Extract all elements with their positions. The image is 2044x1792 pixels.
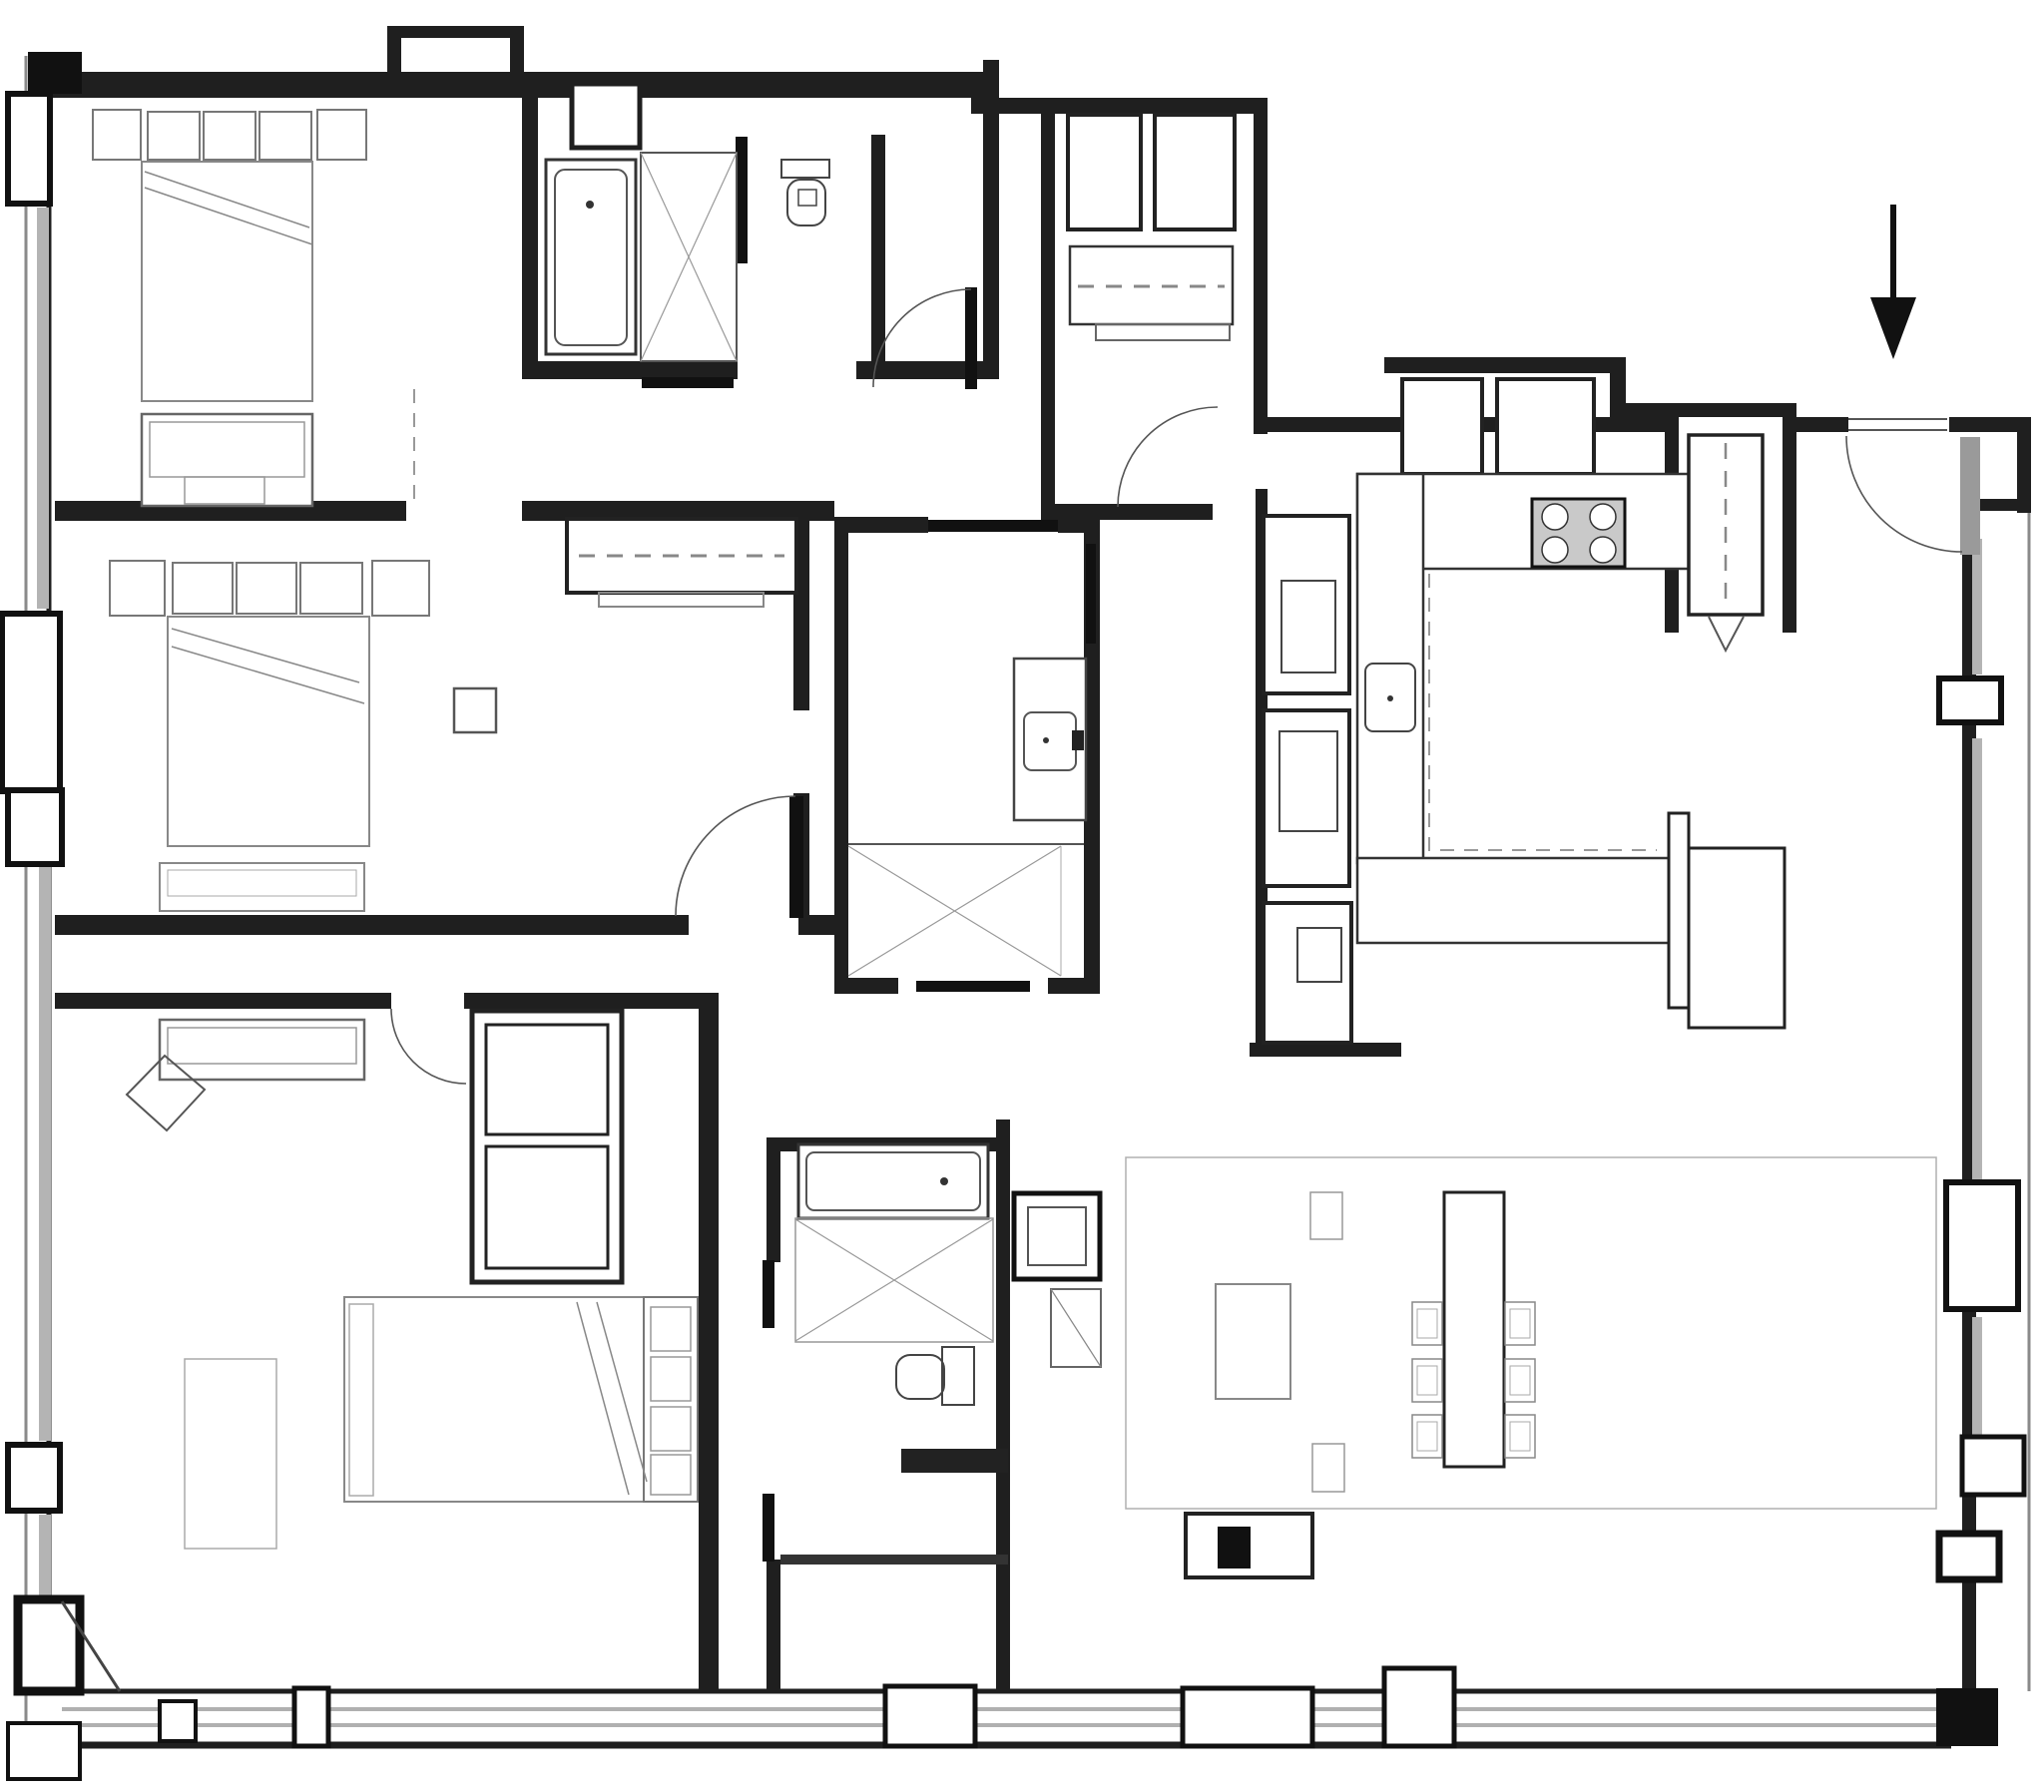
pillar-right-2: [1946, 1182, 2018, 1309]
left-window-glass-1: [37, 208, 49, 609]
dining-table: [1444, 1192, 1504, 1467]
bed1-body: [142, 162, 312, 401]
kitchen-counter-bottom: [1357, 858, 1669, 943]
right-window-glass-2: [1972, 738, 1982, 1179]
side-table-1: [1310, 1192, 1342, 1239]
bedroom2-bottom-wall-a: [55, 915, 689, 935]
master-bed-headboard: [644, 1297, 698, 1502]
bath2-tub-drain: [940, 1177, 948, 1185]
bath2-divider: [780, 1555, 1008, 1565]
bed2-body: [168, 617, 369, 846]
fridge-door-mark: [1709, 617, 1744, 651]
stove-burner-2: [1590, 504, 1616, 530]
master-bed-foot: [349, 1304, 373, 1496]
bed1-fold-2: [145, 188, 312, 244]
pillar-right-1: [1939, 678, 2001, 722]
hall-closet-box-2: [1155, 115, 1235, 229]
mullion-bottom-4: [1183, 1688, 1312, 1746]
pillar-below-corner: [8, 1723, 80, 1779]
bath1-tub-drain: [586, 201, 594, 209]
pillar-bottom-right-corner: [1936, 1688, 1998, 1746]
bath2-slider-bottom: [763, 1494, 774, 1562]
stove-burner-1: [1542, 504, 1568, 530]
bed2-nightstand-left: [110, 561, 165, 616]
bedroom2-door-leaf: [789, 796, 803, 918]
right-window-glass-1: [1972, 539, 1982, 674]
entry-door-arc: [1846, 436, 1962, 552]
entry-top-wall-b: [1796, 417, 1848, 432]
hall-dresser: [1070, 246, 1233, 324]
dining-chair-pad-l3: [1417, 1422, 1437, 1451]
closet-room-right-wall: [1254, 98, 1268, 434]
top-wall-east: [971, 98, 1268, 114]
top-bump-cap: [387, 26, 524, 38]
dining-chair-pad-r1: [1510, 1309, 1530, 1338]
pillar-right-3: [1962, 1437, 2024, 1495]
closet-room-left-wall: [1041, 98, 1055, 520]
pillar-top-left-black: [28, 52, 82, 94]
stove-burner-4: [1590, 537, 1616, 563]
master-top-wall-b: [464, 993, 699, 1009]
master-bed-fold-2: [597, 1302, 647, 1482]
tv-shelf-diag: [1051, 1289, 1101, 1367]
master-right-wall: [699, 993, 719, 1690]
right-wall-upper: [2017, 417, 2031, 513]
floor-plan-drawing: [0, 0, 2044, 1792]
coffee-table: [1216, 1284, 1290, 1399]
fridge-nook-right-wall: [1783, 403, 1796, 633]
tv-cabinet: [1014, 1193, 1100, 1279]
hall-closet-box-1: [1068, 115, 1141, 229]
master-door-arc: [391, 1009, 466, 1084]
bath1-tub: [546, 160, 636, 354]
bed1-credenza: [142, 414, 312, 506]
bath1-toilet-tank: [781, 160, 829, 178]
bed1-nightstand-left: [93, 110, 141, 160]
pantry-unit-3: [1264, 903, 1351, 1043]
entry-door-leaf: [1960, 437, 1980, 555]
bath2-vanity-bar: [901, 1449, 1008, 1473]
mullion-bottom-5: [1384, 1668, 1454, 1746]
bath2-slider-top: [763, 1260, 774, 1328]
bedroom2-closet-shelf: [599, 593, 764, 607]
closetroom-door-arc: [1118, 407, 1218, 507]
left-window-glass-3: [39, 1515, 51, 1598]
plumbing-chase-box: [572, 84, 640, 148]
kitchen-bottom-wall: [1250, 1043, 1401, 1057]
master-top-wall-a: [55, 993, 391, 1009]
bath1-bottom-wall-b: [856, 361, 999, 379]
floor-plan-page: [0, 0, 2044, 1792]
bath1-toilet-seat: [798, 190, 816, 206]
intbath-left-wall: [834, 517, 848, 994]
top-wall-main: [30, 72, 985, 98]
intbath-bottom-wall-b: [1048, 978, 1100, 994]
master-bed-body: [344, 1297, 646, 1502]
mullion-bottom-3: [885, 1686, 975, 1746]
bedroom1-right-wall: [522, 94, 538, 379]
bath2-toilet-bowl: [896, 1355, 944, 1399]
pillar-right-4: [1939, 1534, 1999, 1579]
window-bench-block: [1218, 1527, 1251, 1568]
kitchen-sink-drain: [1387, 695, 1393, 701]
bath2-tub: [798, 1144, 988, 1218]
bed2-nightstand-right: [372, 561, 429, 616]
master-bed-fold-1: [577, 1302, 629, 1495]
bedroom2-door-arc: [676, 796, 795, 916]
entry-arrow-head: [1870, 297, 1916, 359]
master-bench: [185, 1359, 276, 1549]
kitchen-cabinet-1: [1402, 379, 1482, 474]
pillar-left-4: [8, 1445, 60, 1511]
mullion-bottom-2: [294, 1688, 328, 1746]
bath1-slider-bar: [642, 377, 734, 388]
bath1-toilet-bowl: [787, 180, 825, 225]
storage-right-wall: [983, 60, 999, 379]
hall-dresser-shelf: [1096, 324, 1230, 340]
mullion-bottom-1: [160, 1701, 196, 1741]
bath1-bottom-wall-a: [522, 361, 738, 379]
kitchen-top-wall: [1384, 357, 1614, 373]
bed1-pillow-2: [204, 112, 255, 160]
pillar-left-2: [2, 614, 60, 791]
bed1-pillow-3: [259, 112, 311, 160]
pillar-left-1: [8, 94, 50, 204]
side-table-2: [1312, 1444, 1344, 1492]
intbath-bottom-wall-a: [834, 978, 898, 994]
master-dresser: [160, 1020, 364, 1080]
bath2-toilet-tank: [942, 1347, 974, 1405]
stove-burner-3: [1542, 537, 1568, 563]
intbath-niche-bar: [1086, 544, 1096, 644]
bath1-toilet-right-wall: [871, 135, 885, 362]
kitchen-overhang-dash: [1429, 574, 1657, 850]
corridor-door-leaf: [965, 287, 977, 389]
kitchen-bar-box: [1689, 848, 1785, 1028]
bath2-right-wall: [996, 1120, 1010, 1690]
kitchen-end-panel: [1669, 813, 1689, 1008]
pillar-left-3: [8, 790, 62, 864]
bedroom2-bottom-wall-b: [798, 915, 834, 935]
dining-chair-pad-l1: [1417, 1309, 1437, 1338]
right-window-glass-3: [1972, 1317, 1982, 1435]
bed1-fold-1: [145, 172, 309, 227]
kitchen-counter-left: [1357, 474, 1423, 863]
intbath-faucet: [1072, 730, 1084, 750]
left-window-glass-2: [39, 866, 51, 1441]
bed2-pillow-1: [173, 563, 233, 614]
intbath-slider-bottom: [916, 981, 1030, 992]
fridge-nook-top-wall: [1665, 403, 1796, 417]
bath2-left-wall-a: [766, 1137, 780, 1262]
bed2-side-table: [454, 688, 496, 732]
dining-chair-pad-l2: [1417, 1366, 1437, 1395]
living-rug: [1126, 1157, 1936, 1509]
bed2-pillow-2: [237, 563, 296, 614]
bed1-nightstand-right: [317, 110, 366, 160]
bath2-left-wall-b: [766, 1560, 780, 1690]
intbath-top-wall-a: [834, 517, 928, 533]
dining-chair-pad-r2: [1510, 1366, 1530, 1395]
bed1-pillow-1: [148, 112, 200, 160]
intbath-slider-top: [928, 520, 1058, 532]
bed2-pillow-3: [300, 563, 362, 614]
intbath-sink-drain: [1043, 737, 1049, 743]
pantry-unit-1: [1264, 516, 1349, 693]
dining-chair-pad-r3: [1510, 1422, 1530, 1451]
kitchen-cabinet-2: [1497, 379, 1594, 474]
